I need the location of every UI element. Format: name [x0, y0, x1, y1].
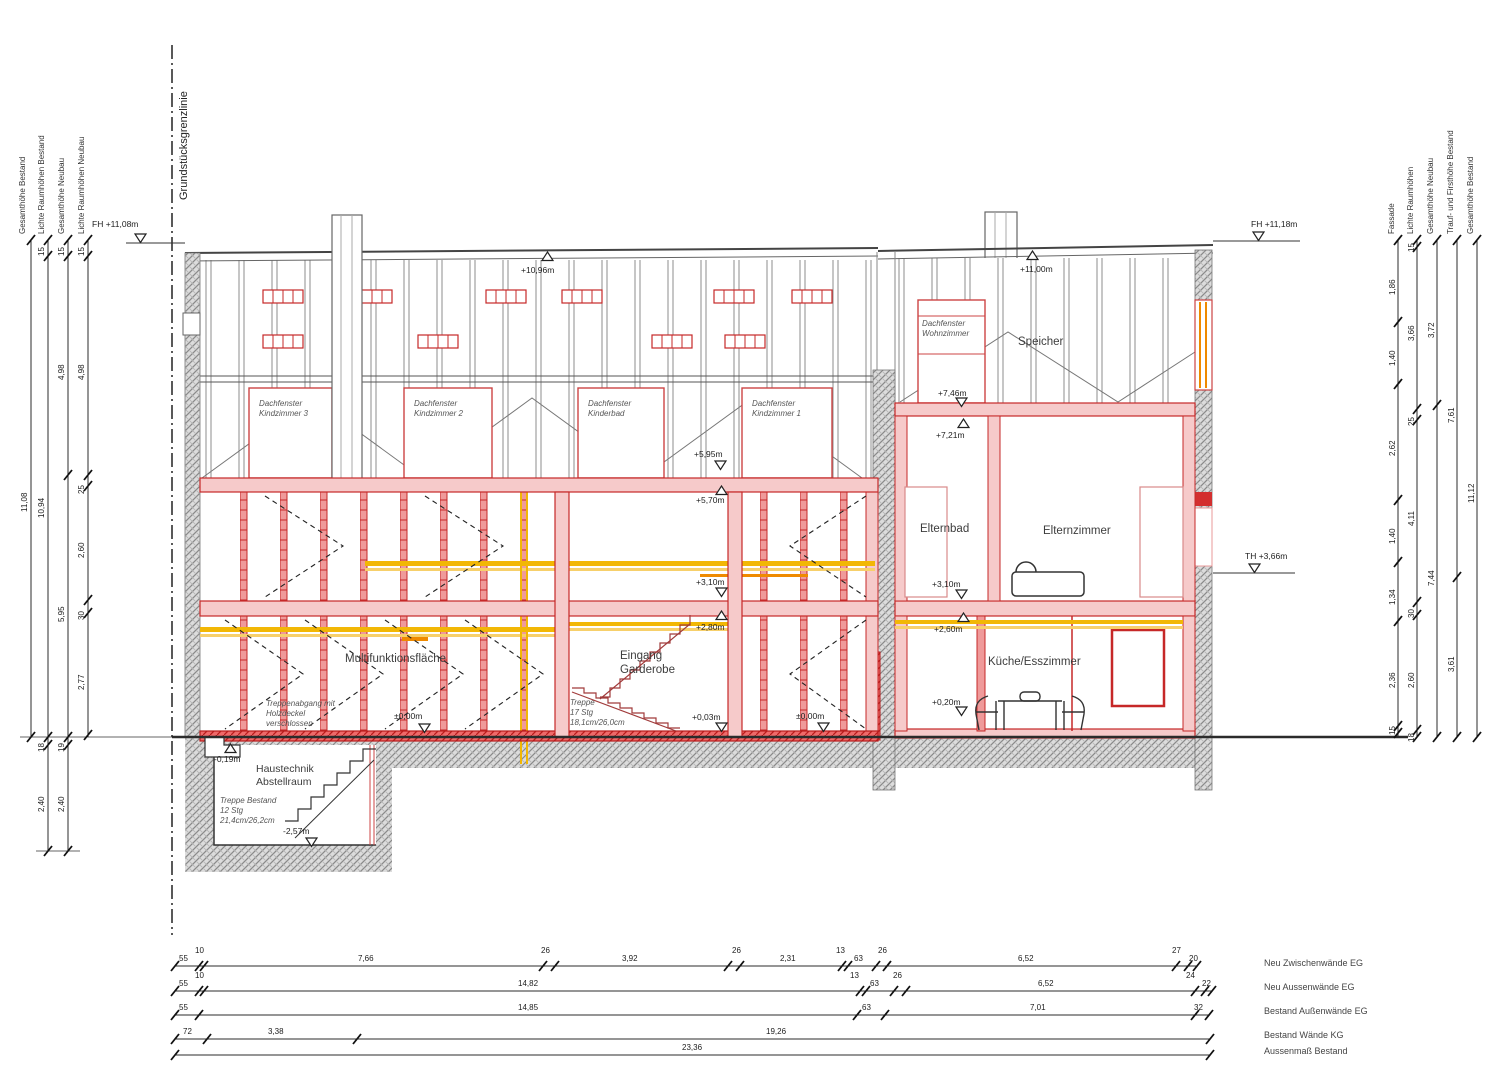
- level-basement-entry: -0,19m: [214, 754, 240, 764]
- dim-value: 55: [179, 979, 188, 988]
- dim-value: 2,60: [77, 542, 86, 558]
- room-dachfenster-wohnzimmer: Dachfenster Wohnzimmer: [922, 319, 969, 339]
- dim-value: 4,98: [57, 364, 66, 380]
- dim-value: 14,85: [518, 1003, 538, 1012]
- level-eg-ceiling-left: +2,80m: [696, 622, 725, 632]
- level-ridge-left: +10,96m: [521, 265, 554, 275]
- room-dachfenster-kinderbad: Dachfenster Kinderbad: [588, 399, 631, 419]
- dim-value: 23,36: [682, 1043, 702, 1052]
- dim-value: 63: [862, 1003, 871, 1012]
- dim-value: 26: [878, 946, 887, 955]
- bed-symbol: [1012, 562, 1084, 596]
- dim-value: 14,82: [518, 979, 538, 988]
- dim-value: 30: [77, 611, 86, 620]
- dim-value: 3,38: [268, 1027, 284, 1036]
- right-axis-label-1: Fassade: [1387, 203, 1396, 234]
- right-axis-label-3: Gesamthöhe Neubau: [1426, 158, 1435, 234]
- right-axis-label-4: Trauf- und Firsthöhe Bestand: [1446, 130, 1455, 234]
- dim-value: 10,94: [37, 498, 46, 518]
- dim-value: 4,98: [77, 364, 86, 380]
- room-multifunktionsflaeche: Multifunktionsfläche: [345, 652, 446, 666]
- level-speicher-floor: +7,46m: [938, 388, 967, 398]
- dim-value: 15: [1407, 243, 1416, 252]
- level-og-ceiling-right: +7,21m: [936, 430, 965, 440]
- note-treppe-neu: Treppe 17 Stg 18,1cm/26,0cm: [570, 698, 625, 728]
- dim-value: 25: [77, 485, 86, 494]
- dim-value: 32: [1194, 1003, 1203, 1012]
- legend-row-1: Neu Zwischenwände EG: [1264, 958, 1363, 968]
- dim-value: 15: [77, 247, 86, 256]
- dim-value: 2,40: [57, 796, 66, 812]
- dim-value: 11,12: [1467, 484, 1476, 503]
- room-speicher: Speicher: [1018, 335, 1063, 349]
- room-elternzimmer: Elternzimmer: [1043, 524, 1111, 538]
- dim-value: 2,31: [780, 954, 796, 963]
- level-fh-left: FH +11,08m: [92, 219, 138, 229]
- dim-value: 3,72: [1427, 322, 1436, 338]
- legend-row-3: Bestand Außenwände EG: [1264, 1006, 1368, 1016]
- dim-value: 15: [1388, 726, 1397, 735]
- property-line-label: Grundstücksgrenzlinie: [178, 91, 190, 200]
- level-basement-floor: -2,57m: [283, 826, 309, 836]
- dim-value: 3,92: [622, 954, 638, 963]
- dim-value: 19,26: [766, 1027, 786, 1036]
- dim-value: 1,40: [1388, 528, 1397, 544]
- dim-value: 15: [57, 247, 66, 256]
- dim-value: 1,86: [1388, 279, 1397, 295]
- dim-value: 18: [37, 743, 46, 752]
- dining-table-symbol: [976, 692, 1085, 730]
- level-og-ceiling-left: +5,70m: [696, 495, 725, 505]
- dim-value: 7,44: [1427, 570, 1436, 586]
- architectural-section-sheet: { "labels": { "property_line": "Grundstü…: [0, 0, 1509, 1080]
- dim-value: 6,52: [1018, 954, 1034, 963]
- dim-value: 10: [195, 971, 204, 980]
- legend-row-5: Aussenmaß Bestand: [1264, 1046, 1348, 1056]
- right-building-interior: [895, 403, 1195, 738]
- dim-value: 26: [893, 971, 902, 980]
- room-kueche-esszimmer: Küche/Esszimmer: [988, 655, 1081, 669]
- dim-value: 20: [1189, 954, 1198, 963]
- dim-value: 26: [732, 946, 741, 955]
- level-attic-floor: +5,95m: [694, 449, 723, 459]
- dim-value: 13: [836, 946, 845, 955]
- right-axis-label-5: Gesamthöhe Bestand: [1466, 157, 1475, 234]
- left-axis-label-3: Gesamthöhe Neubau: [57, 158, 66, 234]
- level-og-floor-left: +3,10m: [696, 577, 725, 587]
- dim-value: 3,66: [1407, 325, 1416, 341]
- right-axis-label-2: Lichte Raumhöhen: [1406, 167, 1415, 234]
- dim-value: 15: [37, 247, 46, 256]
- dim-value: 7,01: [1030, 1003, 1046, 1012]
- dim-value: 1,34: [1388, 589, 1397, 605]
- dim-value: 5,95: [57, 606, 66, 622]
- level-eg-floor-entry: +0,03m: [692, 712, 721, 722]
- dim-value: 30: [1407, 609, 1416, 618]
- room-elternbad: Elternbad: [920, 522, 969, 536]
- level-eg-ceiling-right: +2,60m: [934, 624, 963, 634]
- dim-value: 72: [183, 1027, 192, 1036]
- section-drawing: [0, 0, 1509, 1080]
- dim-value: 63: [870, 979, 879, 988]
- dim-value: 2,62: [1388, 440, 1397, 456]
- dim-value: 10: [195, 946, 204, 955]
- level-eg-floor-right: +0,20m: [932, 697, 961, 707]
- note-treppe-bestand: Treppe Bestand 12 Stg 21,4cm/26,2cm: [220, 796, 276, 826]
- dim-value: 18: [1407, 733, 1416, 742]
- dim-value: 22: [1202, 979, 1211, 988]
- dim-value: 19: [57, 743, 66, 752]
- room-dachfenster-kindzimmer1: Dachfenster Kindzimmer 1: [752, 399, 801, 419]
- dim-value: 25: [1407, 417, 1416, 426]
- dim-value: 2,36: [1388, 672, 1397, 688]
- dim-value: 63: [854, 954, 863, 963]
- dim-value: 27: [1172, 946, 1181, 955]
- room-dachfenster-kindzimmer3: Dachfenster Kindzimmer 3: [259, 399, 308, 419]
- dim-value: 3,61: [1447, 656, 1456, 672]
- dim-value: 24: [1186, 971, 1195, 980]
- left-axis-label-1: Gesamthöhe Bestand: [18, 157, 27, 234]
- legend-row-4: Bestand Wände KG: [1264, 1030, 1344, 1040]
- level-zero-left: ±0,00m: [394, 711, 422, 721]
- dim-value: 2,40: [37, 796, 46, 812]
- dim-value: 2,77: [77, 674, 86, 690]
- level-og-floor-right: +3,10m: [932, 579, 961, 589]
- dim-value: 7,61: [1447, 407, 1456, 423]
- dim-value: 1,40: [1388, 350, 1397, 366]
- left-axis-label-4: Lichte Raumhöhen Neubau: [77, 137, 86, 234]
- level-ridge-right: +11,00m: [1020, 264, 1053, 274]
- dim-value: 2,60: [1407, 672, 1416, 688]
- room-eingang-garderobe: Eingang Garderobe: [620, 649, 675, 678]
- dim-value: 7,66: [358, 954, 374, 963]
- dim-value: 55: [179, 954, 188, 963]
- dim-value: 26: [541, 946, 550, 955]
- note-treppenabgang: Treppenabgang mit Holzdeckel verschlosse…: [266, 699, 335, 729]
- dim-value: 13: [850, 971, 859, 980]
- level-th-right: TH +3,66m: [1245, 551, 1287, 561]
- level-zero-right: ±0,00m: [796, 711, 824, 721]
- room-haustechnik-abstellraum: Haustechnik Abstellraum: [256, 763, 314, 789]
- dim-value: 4,11: [1407, 511, 1416, 526]
- room-dachfenster-kindzimmer2: Dachfenster Kindzimmer 2: [414, 399, 463, 419]
- level-fh-right: FH +11,18m: [1251, 219, 1297, 229]
- dim-value: 55: [179, 1003, 188, 1012]
- legend-row-2: Neu Aussenwände EG: [1264, 982, 1355, 992]
- dim-value: 6,52: [1038, 979, 1054, 988]
- dim-value: 11,08: [20, 493, 29, 512]
- left-axis-label-2: Lichte Raumhöhen Bestand: [37, 135, 46, 234]
